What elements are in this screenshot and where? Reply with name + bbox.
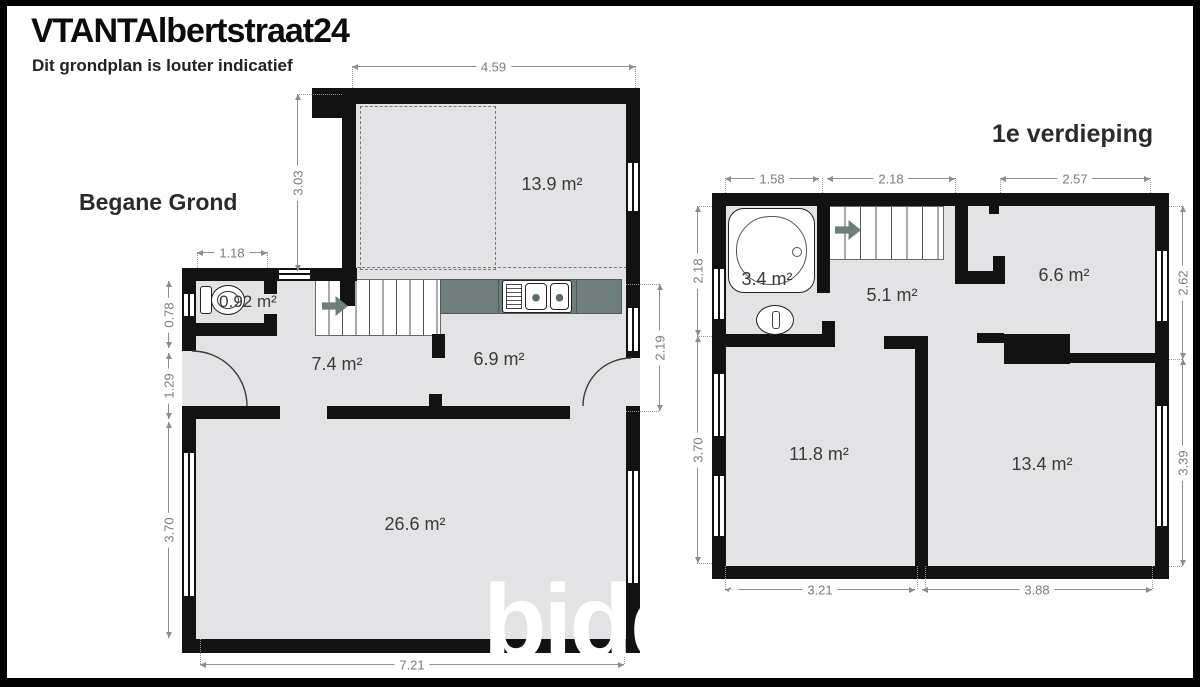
wall-segment [626,88,640,163]
dim-leader [822,178,823,193]
wall-segment [712,193,1169,206]
dim-bottom-left: 3.21 [725,589,915,590]
dim-leader [955,178,956,193]
dim-top-middle: 2.18 [827,178,955,179]
dim-wc-height: 0.78 [168,281,169,348]
window [1155,251,1169,321]
counter-seam [498,279,499,314]
wall-segment [342,88,640,104]
window [626,163,640,211]
room-area-label: 6.6 m² [1014,265,1114,286]
counter-seam [576,279,577,314]
dim-leader [297,94,342,95]
wall-segment [1155,526,1169,579]
wall-segment [993,256,1005,271]
wall-segment [977,333,1004,343]
wall-segment [712,436,726,476]
wall-segment [955,271,1005,284]
page-title: VTANTAlbertstraat24 [31,12,349,51]
dim-top-right: 2.57 [1000,178,1150,179]
floorplan-canvas: VTANTAlbertstraat24 Dit grondplan is lou… [0,0,1200,687]
room-area-label: 26.6 m² [350,514,480,535]
window [712,476,726,536]
wall-segment [182,268,196,294]
dim-top-width: 4.59 [352,66,635,67]
dim-wc-width: 1.18 [197,252,267,253]
wall-segment [327,406,570,419]
room-area-label: 6.9 m² [439,349,559,370]
window [626,308,640,351]
watermark-logo: biddit [483,570,748,674]
wall-segment [712,566,1169,579]
dim-top-room-height: 3.03 [297,94,298,271]
sink-basin-icon [550,283,569,310]
dim-leader [917,566,918,589]
wall-segment [822,321,835,334]
wall-segment [429,394,442,406]
room-area-label: 0.92 m² [192,292,304,312]
wall-segment [712,334,835,347]
dim-leader [1169,566,1182,567]
door-arc [583,358,631,406]
dashed-zone [360,106,496,270]
dim-kitchen-height: 2.19 [659,284,660,411]
dim-left-lower: 3.70 [697,336,698,563]
sink-basin-icon [525,283,547,310]
dim-living-height: 3.70 [168,422,169,638]
wall-segment [817,206,830,293]
dim-leader [1152,566,1153,589]
bathroom-sink-icon [756,305,794,335]
wall-segment [989,206,999,214]
first-floor-label: 1e verdieping [992,120,1153,149]
wall-segment [182,323,277,336]
chimney-block [1004,334,1070,364]
wall-segment [712,193,726,269]
room-area-label: 7.4 m² [277,354,397,375]
dim-hall-height: 1.29 [168,353,169,419]
wall-segment [626,211,640,280]
dim-leader [200,639,201,664]
dim-leader [635,66,636,88]
sink-drainboard-icon [506,284,522,309]
window [182,453,196,596]
first-floor-plan: 3.4 m² 5.1 m² 6.6 m² 11.8 m² 13.4 m² 1.5… [712,193,1200,613]
wall-segment [1155,193,1169,251]
dim-right-lower: 3.39 [1182,359,1183,566]
wall-segment [626,351,640,358]
dim-left-upper: 2.18 [697,206,698,336]
dim-leader [626,284,659,285]
room-area-label: 11.8 m² [767,444,871,465]
dim-leader [267,252,268,268]
dim-top-left: 1.58 [725,178,819,179]
dim-bottom-right: 3.88 [922,589,1152,590]
wall-segment [342,88,356,280]
wall-segment [1155,321,1169,406]
room-area-label: 3.4 m² [722,269,812,290]
wall-segment [182,406,280,419]
wall-segment [915,336,928,566]
dim-leader [1150,178,1151,193]
wall-segment [626,406,640,471]
dashed-boundary [357,267,627,268]
door-arc [192,351,248,407]
window [1155,406,1169,526]
room-area-label: 13.9 m² [492,174,612,195]
wall-segment [1070,353,1155,363]
wall-segment [340,268,355,306]
room-area-label: 13.4 m² [992,454,1092,475]
window [712,374,726,436]
wall-segment [884,336,928,349]
dim-leader [626,411,659,412]
dim-right-upper: 2.62 [1182,206,1183,359]
room-area-label: 5.1 m² [842,285,942,306]
